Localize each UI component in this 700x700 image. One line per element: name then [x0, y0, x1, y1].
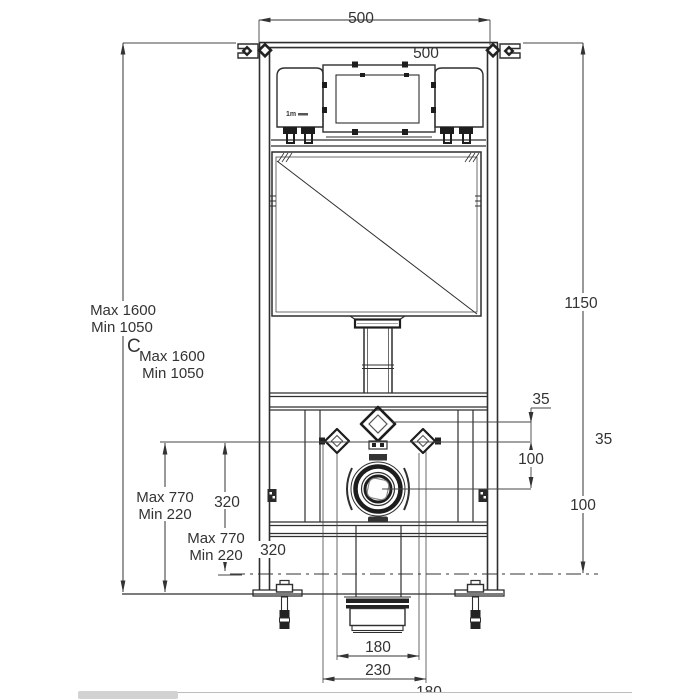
flush-unit-feet: [284, 128, 472, 143]
dim-drain-width: 180: [365, 639, 391, 656]
technical-drawing-canvas: 1m: [0, 0, 700, 700]
dim-width-inner: 500: [413, 45, 439, 62]
cistern-tank: [270, 152, 481, 320]
dim-frame-height: 1150: [564, 295, 598, 312]
dim-35-outer: 35: [595, 431, 612, 448]
dim-outlet-max: Max 770: [136, 489, 194, 506]
anchor-bolt-left: [277, 581, 293, 630]
fixing-bolt-right: [411, 429, 441, 453]
fixing-bolt-left: [319, 429, 349, 453]
wc-frame-drawing: 1m: [0, 0, 700, 700]
wall-bracket-left: [238, 44, 258, 58]
dim-outlet-min-2: Min 220: [189, 547, 242, 564]
flush-valve-cap: [355, 320, 400, 328]
dim-height-max: Max 1600: [90, 302, 156, 319]
scrollbar-thumb[interactable]: [78, 691, 178, 699]
brand-logo: 1m: [286, 111, 308, 118]
anchor-bolt-right: [468, 581, 484, 630]
dim-100-outer: 100: [570, 497, 596, 514]
dim-height-max-2: Max 1600: [139, 348, 205, 365]
drain-elbow: [344, 525, 411, 633]
dim-width-top: 500: [348, 10, 374, 27]
inlet-fitting: [361, 407, 395, 449]
rail-fasteners: [268, 489, 488, 502]
dim-height-min-2: Min 1050: [142, 365, 204, 382]
dim-drain-spacing: 230: [365, 662, 391, 679]
dim-outlet-min: Min 220: [138, 506, 191, 523]
drain-outlet: [347, 454, 409, 523]
dim-35-inner: 35: [532, 391, 549, 408]
dim-outlet-max-2: Max 770: [187, 530, 245, 547]
dim-outlet-rise-2: 320: [260, 542, 286, 559]
flush-pipe: [362, 328, 394, 393]
dim-100-inner: 100: [518, 451, 544, 468]
wall-bracket-right: [500, 44, 520, 58]
brand-logo-text: 1m: [286, 111, 296, 118]
scrollbar-track[interactable]: [178, 692, 632, 700]
dim-outlet-rise: 320: [214, 494, 240, 511]
dim-height-min: Min 1050: [91, 319, 153, 336]
